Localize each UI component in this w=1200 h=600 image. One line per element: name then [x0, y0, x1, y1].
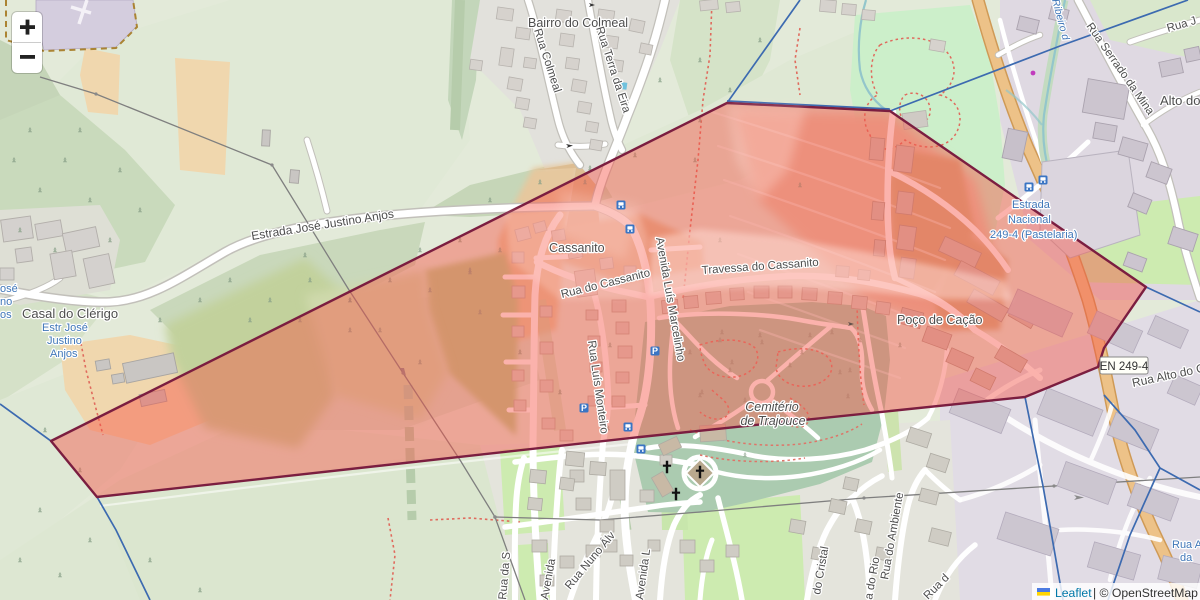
svg-text:Estr José: Estr José [42, 322, 88, 334]
svg-text:Cemitério: Cemitério [745, 400, 799, 414]
svg-text:da: da [1180, 552, 1193, 564]
svg-text:Estrada: Estrada [1012, 199, 1051, 211]
svg-text:EN 249-4: EN 249-4 [1100, 361, 1149, 373]
svg-text:| © OpenStreetMap: | © OpenStreetMap [1093, 586, 1198, 600]
svg-text:Nacional: Nacional [1008, 214, 1051, 226]
svg-text:Leaflet: Leaflet [1055, 586, 1092, 600]
svg-text:os: os [0, 309, 12, 321]
svg-text:Anjos: Anjos [50, 348, 78, 360]
svg-text:249-4 (Pastelaria): 249-4 (Pastelaria) [990, 229, 1077, 241]
svg-text:osé: osé [0, 283, 18, 295]
svg-text:Justino: Justino [47, 335, 82, 347]
svg-text:Alto do: Alto do [1160, 93, 1200, 108]
svg-text:de Trajouce: de Trajouce [740, 414, 805, 428]
svg-text:Poço de Cação: Poço de Cação [897, 313, 983, 327]
svg-text:Rua A: Rua A [1172, 539, 1200, 551]
svg-text:no: no [0, 296, 12, 308]
svg-text:Casal do Clérigo: Casal do Clérigo [22, 306, 118, 321]
svg-text:Cassanito: Cassanito [549, 241, 605, 255]
